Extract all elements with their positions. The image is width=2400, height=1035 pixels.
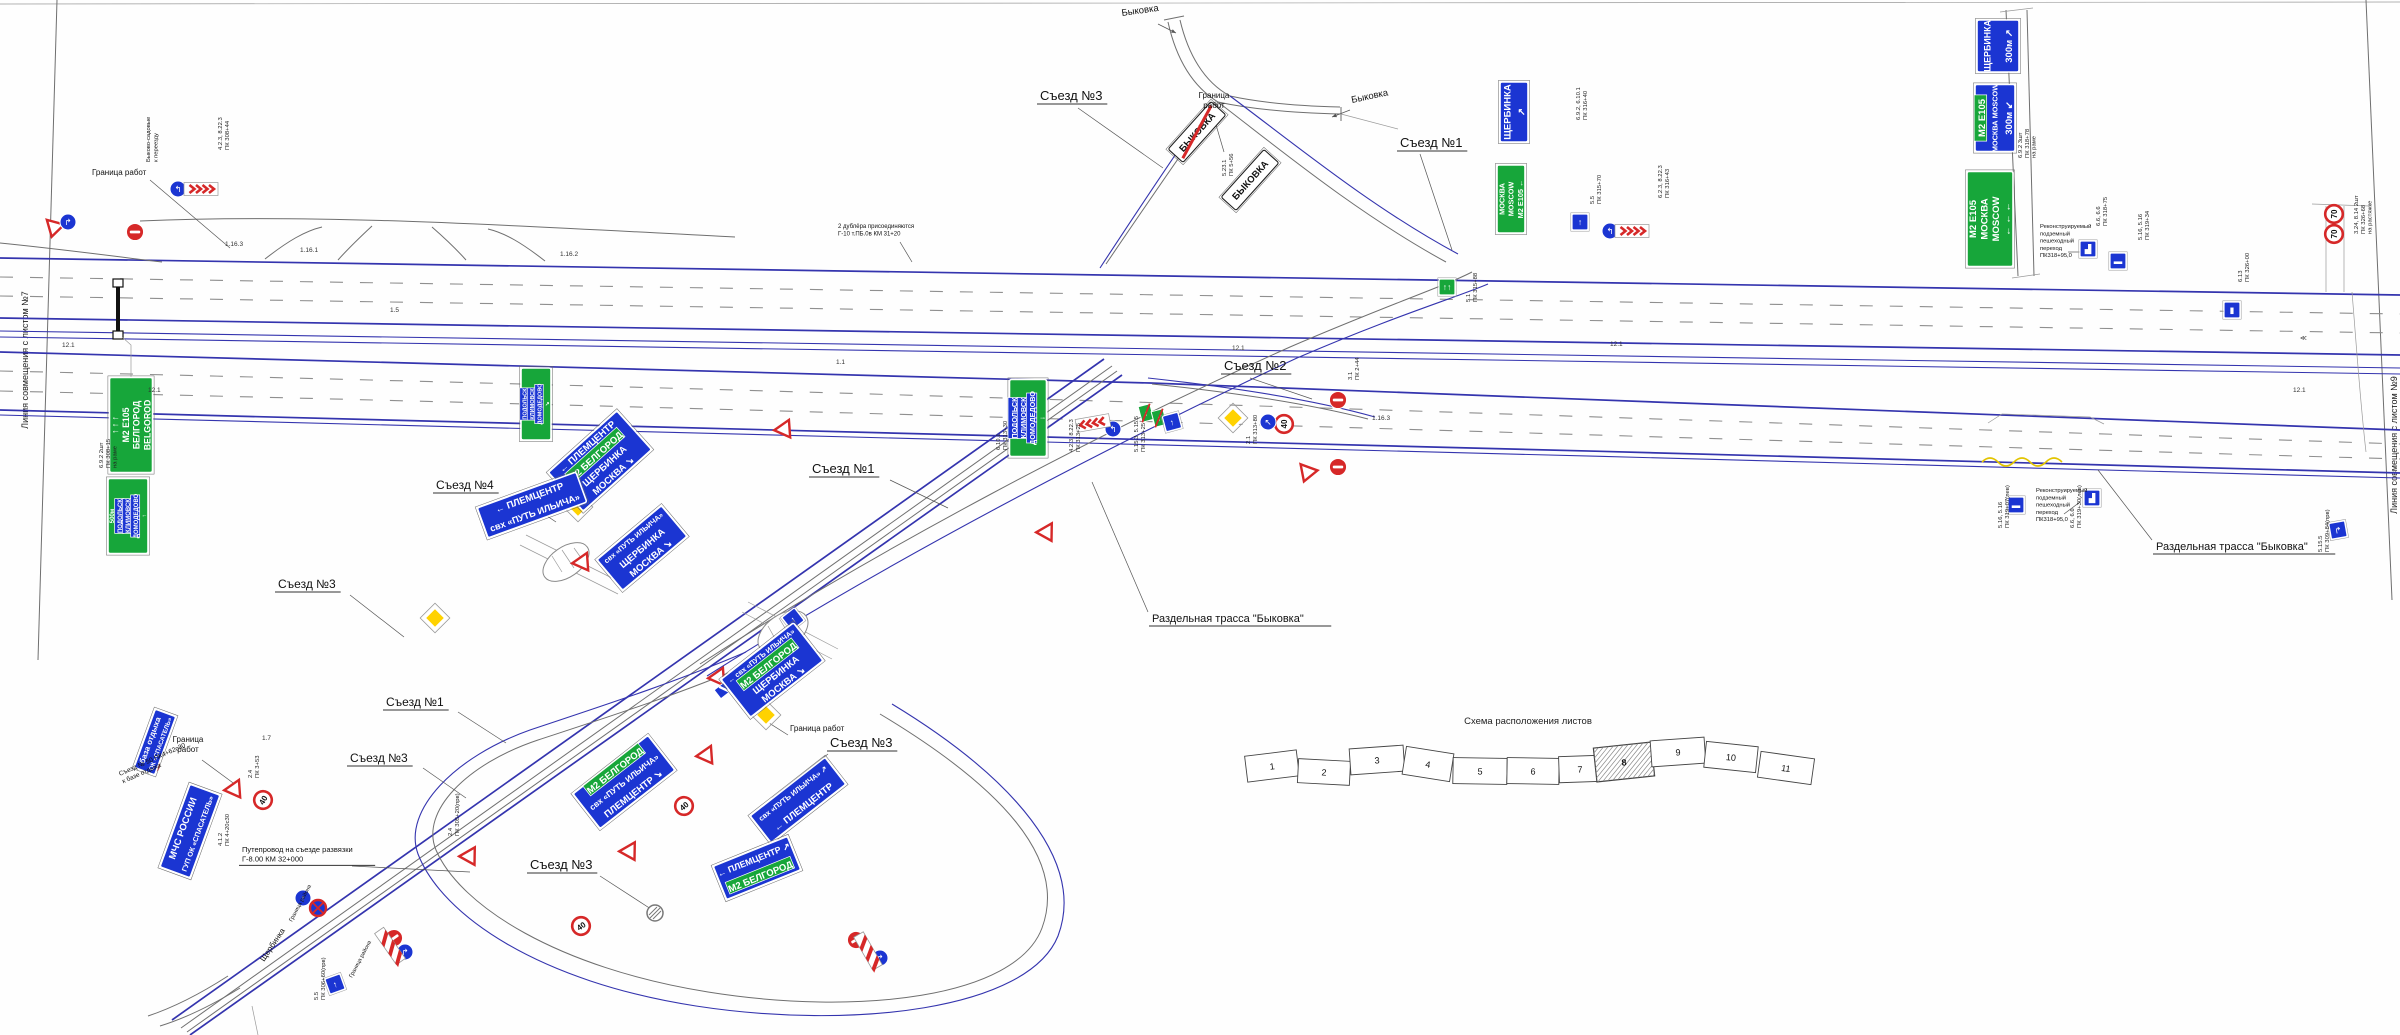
label-razdel-right: Раздельная трасса "Быковка": [2153, 541, 2335, 554]
speed-sign-10: 40: [672, 794, 697, 819]
svg-text:BELGOROD: BELGOROD: [142, 400, 152, 451]
svg-text:2 дублёра присоединяются: 2 дублёра присоединяются: [838, 224, 914, 230]
svg-text:5.15.3, 5.15.5: 5.15.3, 5.15.5: [1134, 415, 1140, 452]
svg-text:Граница района: Граница района: [348, 939, 374, 979]
svg-text:↘: ↘: [545, 401, 551, 406]
svg-text:Г-10 т.ПБ.0в КМ 31+20: Г-10 т.ПБ.0в КМ 31+20: [838, 232, 901, 238]
svg-text:3.1: 3.1: [1348, 372, 1354, 380]
label-exit3-left: Съезд №3: [275, 577, 341, 592]
dim-callout-13: 5.16, 5.16ПК 319+34: [2138, 210, 2151, 240]
dim-callout-3: 4.2.3, 8.22.3ПК 313+25: [1069, 419, 1082, 452]
sign-left-podolsk: 500мПОДОЛЬСККЛИМОВСКДОМОДЕДОВО↑: [106, 477, 149, 555]
sign-tr-shcherbinka: ЩЕРБИНКА↗: [1498, 80, 1529, 143]
svg-text:11: 11: [1781, 763, 1792, 774]
svg-text:ПК 319+30(лев): ПК 319+30(лев): [2077, 485, 2083, 528]
bykovka-lane1: [0, 371, 2400, 444]
sign-fr-moscow-blue: М2 Е105МОСКВА MOSCOW300м ↙: [1973, 83, 2016, 153]
label-granica-mid: Граница работ: [790, 724, 845, 733]
sign-fr-moscow-green: М2 Е105МОСКВАMOSCOW← ← ←: [1965, 170, 2014, 268]
svg-text:переход: переход: [2036, 510, 2059, 516]
give-way-sign-17: [1295, 464, 1317, 484]
svg-text:М2 Е105: М2 Е105: [121, 407, 131, 442]
no-entry-sign-1: [1330, 392, 1347, 409]
svg-text:на раме: на раме: [2032, 135, 2038, 158]
dim-callout-2: 6.10.1ПК 313+30: [996, 420, 1009, 450]
dim-callout-19: 4.1.2ПК 4+20с30: [218, 813, 231, 846]
svg-text:ПК 316+43: ПК 316+43: [1665, 168, 1671, 198]
svg-text:↑↑: ↑↑: [1443, 282, 1452, 292]
label-bykovo-sad: Быково-садовыек переезду: [146, 117, 159, 162]
label-exit4: Съезд №4: [433, 478, 499, 493]
svg-text:4.1.2: 4.1.2: [218, 833, 224, 846]
svg-text:Щербинка: Щербинка: [258, 926, 287, 963]
sign-h-shcherbinka: свх «ПУТЬ ИЛЬИЧА»ЩЕРБИНКАМОСКВА ↘: [595, 503, 690, 592]
gantry-left-base-top: [113, 279, 123, 287]
sq-sign-45: ↑↑: [1438, 278, 1456, 296]
sign-mid-podolsk: ПОДОЛЬСККЛИМОВСКДОМОДЕДОВО↓: [1008, 378, 1048, 458]
label-puteprovod: Путепровод на съезде развязкиГ-8.00 КМ 3…: [239, 845, 375, 865]
svg-text:Граница работ: Граница работ: [92, 168, 147, 177]
svg-text:ЩЕРБИНКА: ЩЕРБИНКА: [1983, 20, 1993, 72]
svg-text:▬: ▬: [2114, 256, 2123, 266]
svg-text:↱: ↱: [64, 217, 71, 227]
label-bykovka-right: Быковка: [1350, 87, 1389, 106]
marking-number-0: 12.1: [62, 342, 75, 349]
svg-text:ПК 2+44: ПК 2+44: [1355, 357, 1361, 380]
svg-text:10: 10: [1725, 752, 1736, 763]
main-top-lane2: [0, 296, 2400, 333]
marking-number-10: 12.1: [2293, 387, 2306, 394]
marking-number-8: 1.16.3: [1372, 415, 1390, 422]
svg-text:Граница: Граница: [1199, 91, 1230, 100]
svg-text:пешеходный: пешеходный: [2040, 238, 2074, 245]
svg-text:ПК 309+84(прв): ПК 309+84(прв): [2325, 509, 2331, 552]
label-razdel-left: Раздельная трасса "Быковка": [1149, 613, 1331, 626]
sign-ss-plemcentr: свх «ПУТЬ ИЛЬИЧА» ↗← ПЛЕМЦЕНТР: [748, 755, 848, 845]
svg-text:на растяжке: на растяжке: [2368, 200, 2374, 234]
old-road-east: [1341, 114, 1398, 129]
svg-text:Съезд №3: Съезд №3: [278, 577, 336, 591]
marking-number-5: 1.5: [390, 307, 399, 314]
interchange-drawing: Линия совмещения с листом №7 Линия совме…: [0, 0, 2400, 1035]
svg-text:МОСКВА MOSCOW: МОСКВА MOSCOW: [1991, 84, 2000, 152]
svg-text:ПК 313+30: ПК 313+30: [1003, 420, 1009, 450]
label-dubler: 2 дублёра присоединяютсяГ-10 т.ПБ.0в КМ …: [838, 224, 914, 238]
chevrons-sign-36: [184, 183, 218, 196]
speed-sign-7: 70: [2325, 225, 2343, 243]
svg-text:подземный: подземный: [2040, 230, 2070, 237]
diagonal-inner-1: [181, 366, 1112, 1028]
sheet-3: 3: [1349, 745, 1405, 775]
dim-callout-1: 4.2.3, 8.22.3ПК 308+44: [218, 117, 231, 150]
svg-text:Раздельная трасса "Быковка": Раздельная трасса "Быковка": [2156, 541, 2308, 553]
svg-text:М2 Е105: М2 Е105: [1968, 199, 1979, 238]
no-stop-sign-34: [310, 900, 326, 916]
dim-callout-16: 5.16, 5.16ПК 319+07(лев): [1998, 485, 2011, 528]
main-top-lane1: [0, 277, 2400, 314]
svg-text:ПК318+95,0: ПК318+95,0: [2036, 517, 2068, 523]
sq-sign-42: ↑: [1571, 213, 1589, 231]
svg-text:Быково-садовые: Быково-садовые: [146, 117, 152, 162]
svg-text:ПК 5+56: ПК 5+56: [1229, 153, 1235, 176]
marking-number-9: 12.1: [1610, 341, 1623, 348]
svg-text:↓: ↓: [1037, 416, 1046, 420]
svg-text:▮: ▮: [2230, 305, 2235, 315]
no-entry-sign-2: [1330, 459, 1347, 476]
svg-text:MOSCOW: MOSCOW: [1991, 197, 2002, 242]
label-bykovka-top: Быковка: [1121, 3, 1160, 19]
loop-outer: [433, 664, 1048, 1002]
dim-callout-23: 5.23.1ПК 5+56: [1222, 153, 1235, 176]
sheet-2: 2: [1297, 759, 1350, 786]
svg-text:ПК 326+00: ПК 326+00: [2245, 252, 2251, 282]
label-granica-raiona-2: Граница района: [348, 939, 374, 979]
diamond-sign-25: [420, 603, 450, 633]
road-plan-sheet: Линия совмещения с листом №7 Линия совме…: [0, 0, 2400, 1035]
sheet-5: 5: [1453, 758, 1507, 785]
dim-callout-10: 5.1ПК 315+88: [1466, 272, 1479, 302]
label-exit3-b: Съезд №3: [527, 857, 597, 873]
svg-text:Съезд №4: Съезд №4: [436, 478, 494, 492]
sheet-10: 10: [1704, 741, 1758, 772]
svg-text:Съезд №3: Съезд №3: [530, 857, 593, 872]
speed-sign-6: 70: [2325, 205, 2343, 223]
svg-text:Раздельная трасса "Быковка": Раздельная трасса "Быковка": [1152, 613, 1304, 625]
sign-fr-shcherbinka: ЩЕРБИНКА300м ↗: [1975, 18, 2020, 73]
marking-number-6: 1.1: [836, 359, 845, 366]
svg-text:ПК 326+68: ПК 326+68: [2361, 204, 2367, 234]
dim-callout-22: 2.4ПК 305+20(прв): [448, 793, 461, 836]
diamond-sign-24: [1218, 403, 1248, 433]
svg-text:ПК 319+34: ПК 319+34: [2145, 210, 2151, 240]
svg-text:← ← ←: ← ← ←: [2003, 202, 2014, 236]
svg-text:ПК 316+40: ПК 316+40: [1583, 90, 1589, 120]
svg-text:БЕЛГОРОД: БЕЛГОРОД: [132, 400, 142, 449]
give-way-sign-18: [224, 780, 247, 803]
bykovka-bottom-edge-2: [0, 415, 2400, 478]
svg-text:6.9.2 2шт: 6.9.2 2шт: [99, 442, 105, 468]
svg-text:5.15.5: 5.15.5: [2318, 535, 2324, 552]
label-exit3-ll2: Съезд №3: [347, 751, 413, 766]
label-granica-tl: Граница работ: [92, 168, 147, 177]
bykovka-lane2: [0, 391, 2400, 459]
give-way-sign-19: [619, 842, 642, 864]
bykovka-stub-cap: [1164, 16, 1184, 20]
marking-number-11: 1.7: [262, 735, 271, 742]
sign-cl-podolsk: ПОДОЛЬСККЛИМОВСКДОМОДЕДОВО↘: [519, 366, 552, 441]
minor-ramp-2: [488, 229, 545, 261]
label-exit1-ll: Съезд №1: [383, 695, 449, 710]
svg-text:70: 70: [2330, 209, 2339, 218]
svg-text:ПК 319+07(лев): ПК 319+07(лев): [2005, 485, 2011, 528]
svg-text:ПК 313+25: ПК 313+25: [1141, 422, 1147, 452]
svg-text:ЩЕРБИНКА: ЩЕРБИНКА: [1502, 84, 1513, 140]
svg-text:ПК318+95,0: ПК318+95,0: [2040, 253, 2072, 259]
speed-sign-9: 40: [251, 788, 275, 812]
svg-text:ПК 318+78: ПК 318+78: [2025, 128, 2031, 158]
bykovka-stem-b: [1180, 20, 1230, 96]
match-line-left-label: Линия совмещения с листом №7: [20, 291, 30, 429]
svg-text:ДОМОДЕДОВО: ДОМОДЕДОВО: [1028, 391, 1037, 445]
svg-text:6.10.1: 6.10.1: [996, 434, 1002, 450]
sheet-9: 9: [1650, 737, 1706, 767]
svg-text:ПК 308+44: ПК 308+44: [225, 120, 231, 150]
svg-text:5.5: 5.5: [314, 991, 320, 1000]
svg-text:к переезду: к переезду: [153, 133, 159, 162]
sq-sign-51: ▮: [2223, 301, 2241, 319]
sq-sign-47: ▬: [2109, 252, 2127, 270]
marking-number-1: 12.1: [148, 387, 161, 394]
give-way-sign-15: [696, 746, 719, 769]
svg-text:6.2.3, 8.22.3: 6.2.3, 8.22.3: [1658, 165, 1664, 198]
svg-text:МОСКВА: МОСКВА: [1497, 182, 1506, 214]
dim-callout-6: 3.1ПК 2+44: [1348, 357, 1361, 380]
svg-text:Быковка: Быковка: [1350, 87, 1389, 106]
svg-text:Граница работ: Граница работ: [790, 724, 845, 733]
svg-text:М2 Е105: М2 Е105: [1977, 98, 1988, 137]
svg-text:5.16, 5.16: 5.16, 5.16: [2138, 213, 2144, 240]
svg-text:40: 40: [1280, 419, 1289, 428]
structures: [113, 8, 2370, 452]
marking-number-12: ≪: [2300, 335, 2307, 342]
svg-text:6.9.2, 6.10.1: 6.9.2, 6.10.1: [1576, 87, 1582, 120]
give-way-sign-20: [1036, 523, 1059, 545]
roads: [0, 16, 2400, 1035]
svg-text:9: 9: [1675, 747, 1681, 757]
svg-text:Съезд №1: Съезд №1: [1400, 135, 1463, 150]
svg-text:переход: переход: [2040, 246, 2063, 252]
svg-text:↰: ↰: [1606, 226, 1613, 236]
loop-inner: [415, 652, 1064, 1016]
sheet-location-diagram: Схема расположения листов 1234567891011: [1245, 716, 1815, 785]
svg-text:ПК 3+53: ПК 3+53: [255, 755, 261, 778]
svg-text:ПК 313+25: ПК 313+25: [1076, 422, 1082, 452]
end-restrict-sign-35: [647, 905, 663, 921]
svg-text:70: 70: [2330, 229, 2339, 238]
match-line-right-label: Линия совмещения с листом №9: [2389, 376, 2399, 514]
marking-number-3: 1.16.1: [300, 247, 318, 254]
minor-ramp-1: [265, 227, 322, 259]
match-line-left: [38, 0, 57, 660]
svg-text:6.6, 6.6: 6.6, 6.6: [2070, 508, 2076, 528]
svg-text:М2 Е105 ←: М2 Е105 ←: [1516, 180, 1525, 219]
svg-text:Г-8.00 КМ 32+000: Г-8.00 КМ 32+000: [242, 854, 303, 863]
svg-text:Реконструируемый: Реконструируемый: [2040, 223, 2091, 230]
dim-callout-9: 6.2.3, 8.22.3ПК 316+43: [1658, 165, 1671, 198]
svg-text:ПК 318+75: ПК 318+75: [2103, 196, 2109, 226]
sheet-1: 1: [1245, 750, 1300, 782]
label-sherbinka-bl: Щербинка: [258, 926, 287, 963]
svg-text:↑: ↑: [1578, 217, 1582, 227]
sheet-4: 4: [1402, 746, 1454, 781]
chevrons-sign-38: [1615, 225, 1649, 238]
main-top-edge: [0, 258, 2400, 295]
label-exit1-top: Съезд №1: [1397, 135, 1467, 151]
traffic-symbols: 707040404040↱↰↰↖↰↱↱↑↑↑↑↑↑▟▬▬▟↱▮↑↑↑: [43, 181, 2349, 996]
sheet-diagram-title: Схема расположения листов: [1464, 716, 1592, 727]
exit1-arc-b: [707, 284, 1488, 676]
svg-text:Съезд №3: Съезд №3: [350, 751, 408, 765]
no-entry-sign-0: [127, 224, 144, 241]
svg-text:Быковка: Быковка: [1121, 3, 1160, 19]
bykovka-bottom-edge: [0, 410, 2400, 473]
svg-text:↗: ↗: [1516, 108, 1527, 116]
svg-text:300м ↙: 300м ↙: [2004, 101, 2015, 135]
bykovka-stem-a: [1168, 22, 1218, 102]
svg-text:5: 5: [1477, 766, 1482, 776]
svg-text:4.2.3, 8.22.3: 4.2.3, 8.22.3: [218, 117, 224, 150]
dim-callout-5: 2.1ПК 313+80: [1246, 414, 1259, 444]
svg-text:на раме: на раме: [113, 445, 119, 468]
give-way-sign-16: [459, 847, 482, 869]
svg-text:↰: ↰: [174, 184, 181, 194]
svg-text:2.1: 2.1: [1246, 436, 1252, 444]
svg-text:ПК 308+15: ПК 308+15: [106, 438, 112, 468]
minor-ramp-3: [338, 226, 372, 260]
bykovka-branch-east-b: [1230, 96, 1340, 107]
gantry-left-base-bottom: [113, 331, 123, 339]
sign-mchs: МЧС РОССИИГУП ОК «СПАСАТЕЛЬ»: [158, 782, 222, 880]
svg-text:6.6, 6.6: 6.6, 6.6: [2096, 206, 2102, 226]
svg-text:Съезд №2: Съезд №2: [1224, 358, 1287, 373]
svg-text:ДОМОДЕДОВО: ДОМОДЕДОВО: [538, 383, 544, 425]
blue-arrow-sign-26: ↱: [60, 214, 76, 230]
svg-text:↖: ↖: [1264, 417, 1271, 427]
svg-text:6: 6: [1530, 766, 1535, 776]
dim-callout-15: 6.13ПК 326+00: [2238, 252, 2251, 282]
dim-callout-21: 5.5ПК 306+60(прв): [314, 957, 327, 1000]
minor-ramp-4: [432, 227, 466, 260]
svg-text:ДОМОДЕДОВО: ДОМОДЕДОВО: [134, 493, 140, 538]
svg-text:2.4: 2.4: [448, 827, 454, 836]
marking-number-2: 1.16.3: [225, 241, 243, 248]
dim-callout-11: 6.9.2 3штПК 318+78на раме: [2018, 128, 2038, 158]
svg-text:8: 8: [1621, 757, 1627, 767]
svg-text:2: 2: [1321, 767, 1327, 777]
label-exit3-top: Съезд №3: [1037, 88, 1107, 104]
label-exit3-cb: Съезд №3: [827, 735, 897, 751]
diagonal-edge-2: [190, 375, 1122, 1035]
svg-text:5.23.1: 5.23.1: [1222, 160, 1228, 176]
dim-callout-18: 5.15.5ПК 309+84(прв): [2318, 509, 2331, 552]
svg-text:пешеходный: пешеходный: [2036, 502, 2070, 509]
median-line-2: [0, 337, 2400, 374]
marking-numbers: 12.112.11.16.31.16.11.16.21.51.112.11.16…: [62, 241, 2307, 742]
marking-number-7: 12.1: [1232, 345, 1245, 352]
svg-text:Граница: Граница: [173, 735, 204, 744]
svg-text:Съезд №3: Съезд №3: [1040, 88, 1103, 103]
blue-arrow-sign-27: ↰: [170, 181, 186, 197]
gantry-left-sign-link: [122, 337, 131, 377]
svg-text:Путепровод на съезде развязки: Путепровод на съезде развязки: [242, 845, 353, 854]
svg-text:2.4: 2.4: [248, 769, 254, 778]
svg-text:6.13: 6.13: [2238, 270, 2244, 282]
svg-text:ПК 313+80: ПК 313+80: [1253, 414, 1259, 444]
svg-text:Съезд №3: Съезд №3: [830, 735, 893, 750]
dim-callout-12: 6.6, 6.6ПК 318+75: [2096, 196, 2109, 226]
svg-text:5.5: 5.5: [1590, 195, 1596, 204]
dim-callout-7: 6.9.2, 6.10.1ПК 316+40: [1576, 87, 1589, 120]
svg-text:MOSCOW: MOSCOW: [1507, 182, 1516, 217]
dim-callout-20: 2.4ПК 3+53: [248, 755, 261, 778]
speed-sign-8: 40: [1275, 415, 1293, 433]
svg-text:7: 7: [1577, 764, 1582, 774]
label-exit1-mid: Съезд №1: [809, 461, 879, 477]
blue-arrow-sign-29: ↖: [1260, 414, 1276, 430]
svg-text:↑: ↑: [142, 515, 148, 518]
svg-text:4.2.3, 8.22.3: 4.2.3, 8.22.3: [1069, 419, 1075, 452]
svg-text:3: 3: [1374, 755, 1380, 765]
svg-text:ПК 315+88: ПК 315+88: [1473, 272, 1479, 302]
sw-stub-3: [252, 1006, 258, 1035]
svg-text:ПК 306+60(прв): ПК 306+60(прв): [321, 957, 327, 1000]
speed-sign-11: 40: [569, 914, 594, 939]
sign-uu-plemcentr: ← ПЛЕМЦЕНТР ↗М2 БЕЛГОРОД: [711, 834, 803, 902]
svg-text:3.24, 8.14 2шт: 3.24, 8.14 2шт: [2354, 195, 2360, 234]
sq-sign-46: ▟: [2079, 240, 2097, 258]
svg-text:↑ ↑ ↑: ↑ ↑ ↑: [110, 416, 120, 434]
svg-text:работ: работ: [1203, 101, 1225, 110]
sw-stub-1: [148, 976, 228, 1016]
svg-text:5.1: 5.1: [1466, 294, 1472, 302]
svg-text:5.16, 5.16: 5.16, 5.16: [1998, 501, 2004, 528]
top-frame-line: [0, 2, 2400, 4]
svg-text:подземный: подземный: [2036, 494, 2066, 501]
svg-text:МОСКВА: МОСКВА: [1980, 198, 1991, 239]
svg-text:Съезд №1: Съезд №1: [386, 695, 444, 709]
sheet-11: 11: [1757, 751, 1814, 784]
svg-text:6.9.2 3шт: 6.9.2 3шт: [2018, 132, 2024, 158]
bykovka-top-edge: [0, 352, 2400, 430]
svg-text:ПК 4+20с30: ПК 4+20с30: [225, 813, 231, 846]
leader-lines: [150, 24, 2152, 911]
svg-text:300м ↗: 300м ↗: [2004, 29, 2015, 63]
sheet-6: 6: [1507, 758, 1559, 785]
svg-text:ПК 315+70: ПК 315+70: [1597, 174, 1603, 204]
minor-road-topleft: [140, 219, 735, 237]
sign-tr-moscow: МОСКВАMOSCOWМ2 Е105 ←: [1495, 163, 1526, 234]
marking-number-4: 1.16.2: [560, 251, 578, 258]
dim-callout-14: 3.24, 8.14 2штПК 326+68на растяжке: [2354, 195, 2374, 234]
svg-text:▬: ▬: [2012, 500, 2021, 510]
svg-text:ПК 305+20(прв): ПК 305+20(прв): [455, 793, 461, 836]
svg-text:Съезд №1: Съезд №1: [812, 461, 875, 476]
label-exit2: Съезд №2: [1221, 358, 1291, 374]
dim-callout-8: 5.5ПК 315+70: [1590, 174, 1603, 204]
